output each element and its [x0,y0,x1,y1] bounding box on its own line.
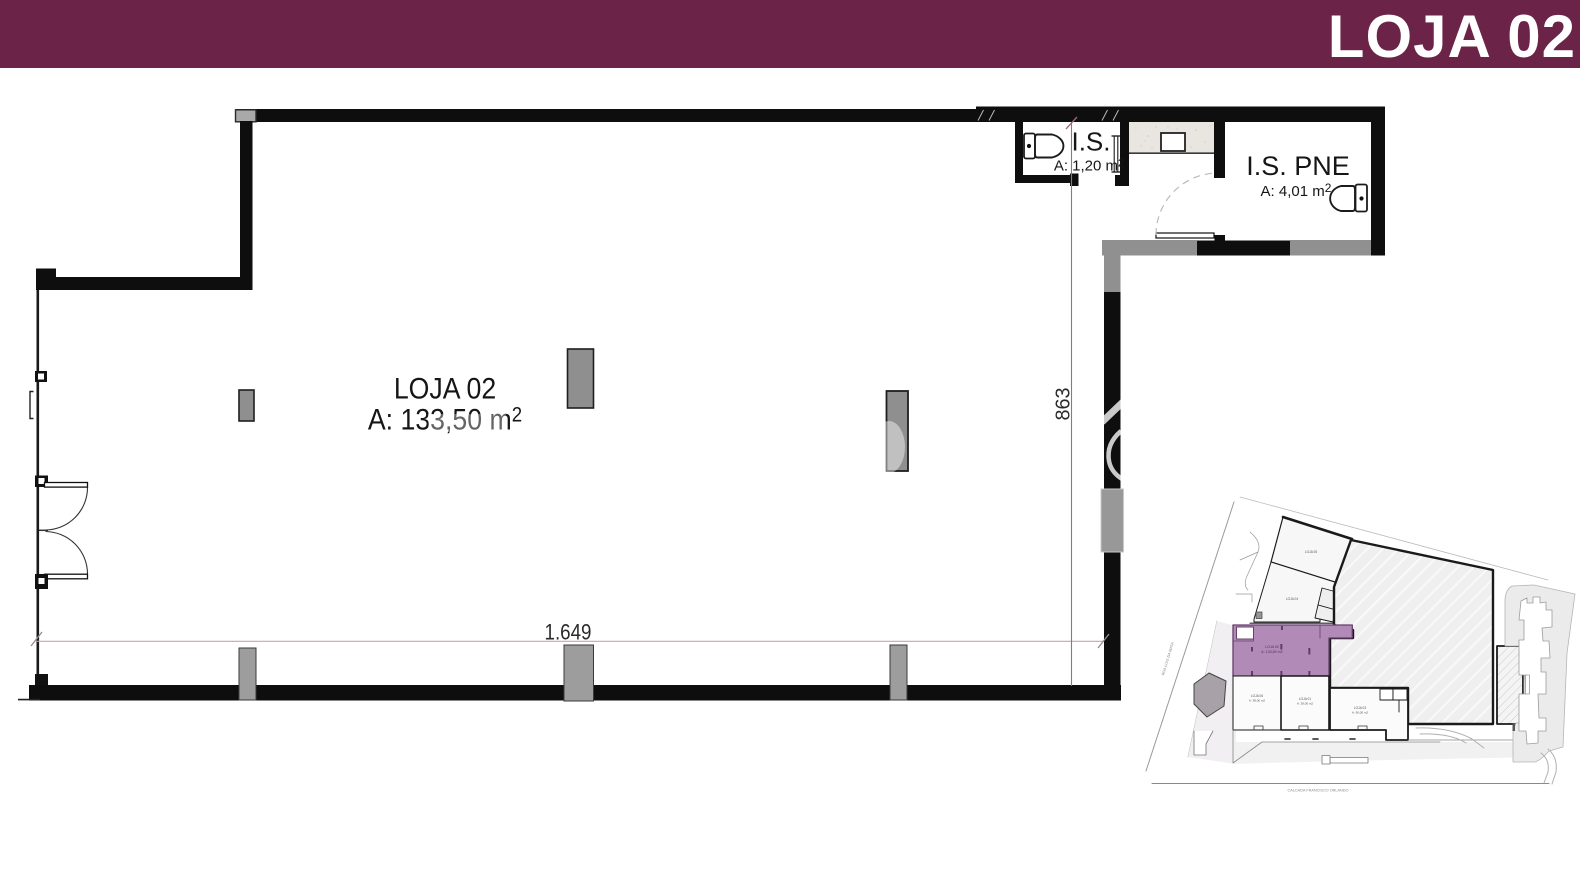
svg-text:A: 56,00 m2: A: 56,00 m2 [1352,711,1369,715]
svg-text:1.649: 1.649 [545,620,592,645]
svg-text:LOJA 01: LOJA 01 [1299,697,1311,701]
svg-text:A: 38,00 m2: A: 38,00 m2 [1249,699,1266,703]
svg-text:LOJA 02: LOJA 02 [1265,645,1279,649]
svg-text:863: 863 [1052,388,1075,421]
svg-text:CALCADA FRANCISCO ORLANDO: CALCADA FRANCISCO ORLANDO [1288,789,1349,793]
svg-text:A: 39,00 m2: A: 39,00 m2 [1297,702,1314,706]
svg-text:LOJA 04: LOJA 04 [1286,597,1298,601]
svg-text:LOJA 03: LOJA 03 [1354,706,1366,710]
svg-text:LOJA 05: LOJA 05 [1305,550,1317,554]
svg-text:A: 4,01 m2: A: 4,01 m2 [1261,181,1332,200]
svg-text:LOJA 02: LOJA 02 [394,372,496,406]
svg-text:LOJA 06: LOJA 06 [1251,694,1263,698]
svg-text:I.S. PNE: I.S. PNE [1246,151,1350,181]
svg-text:A: 1,20 m2: A: 1,20 m2 [1054,158,1124,175]
svg-text:A: 133,50 m2: A: 133,50 m2 [1261,650,1282,654]
svg-text:RUA LUIS DA MATA: RUA LUIS DA MATA [1161,641,1175,676]
svg-text:I.S.: I.S. [1071,127,1110,157]
